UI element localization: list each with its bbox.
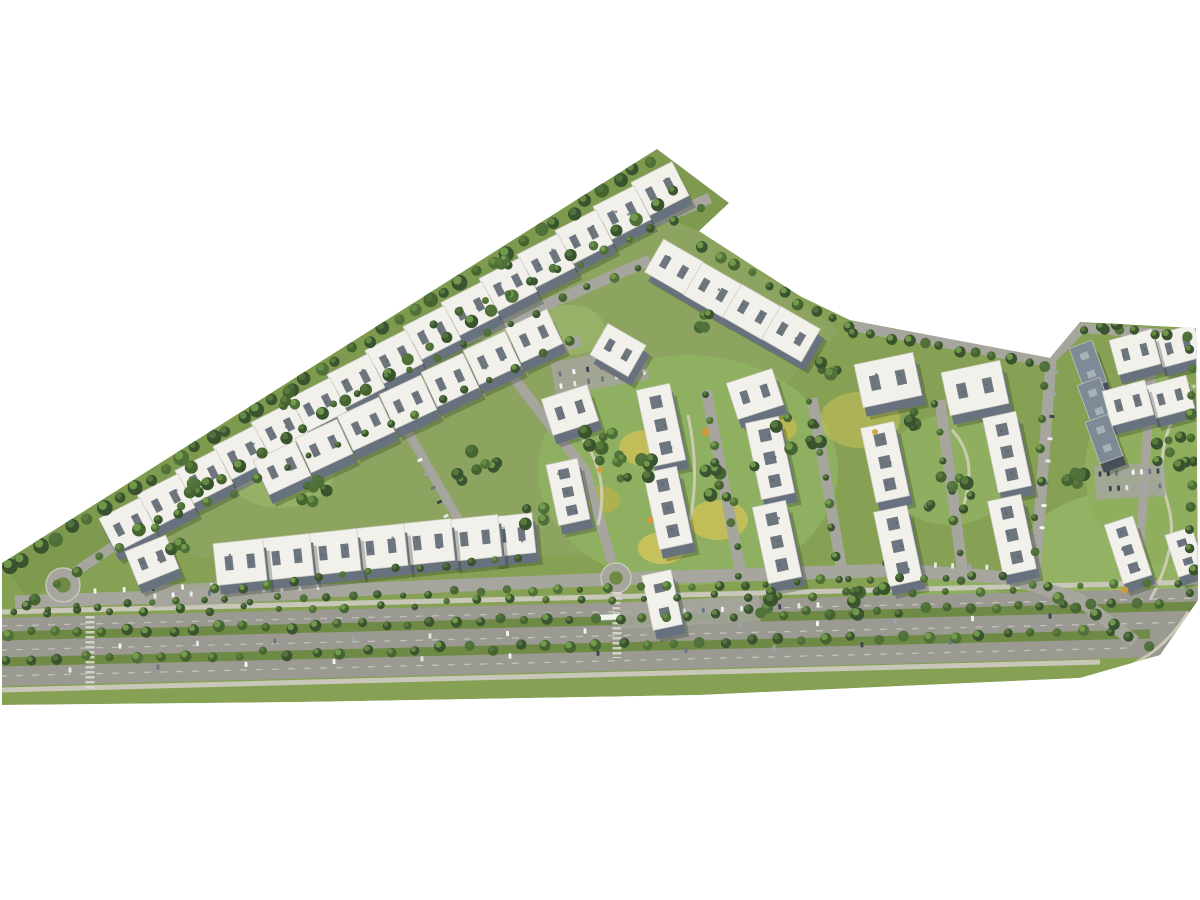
flowering-tree [872,429,878,435]
site-plan-svg [0,0,1200,900]
flowering-tree [597,467,603,473]
flowering-tree [702,428,710,436]
masterplan-aerial-render [0,0,1200,900]
flowering-tree [1122,587,1129,594]
flowering-tree [647,517,654,524]
